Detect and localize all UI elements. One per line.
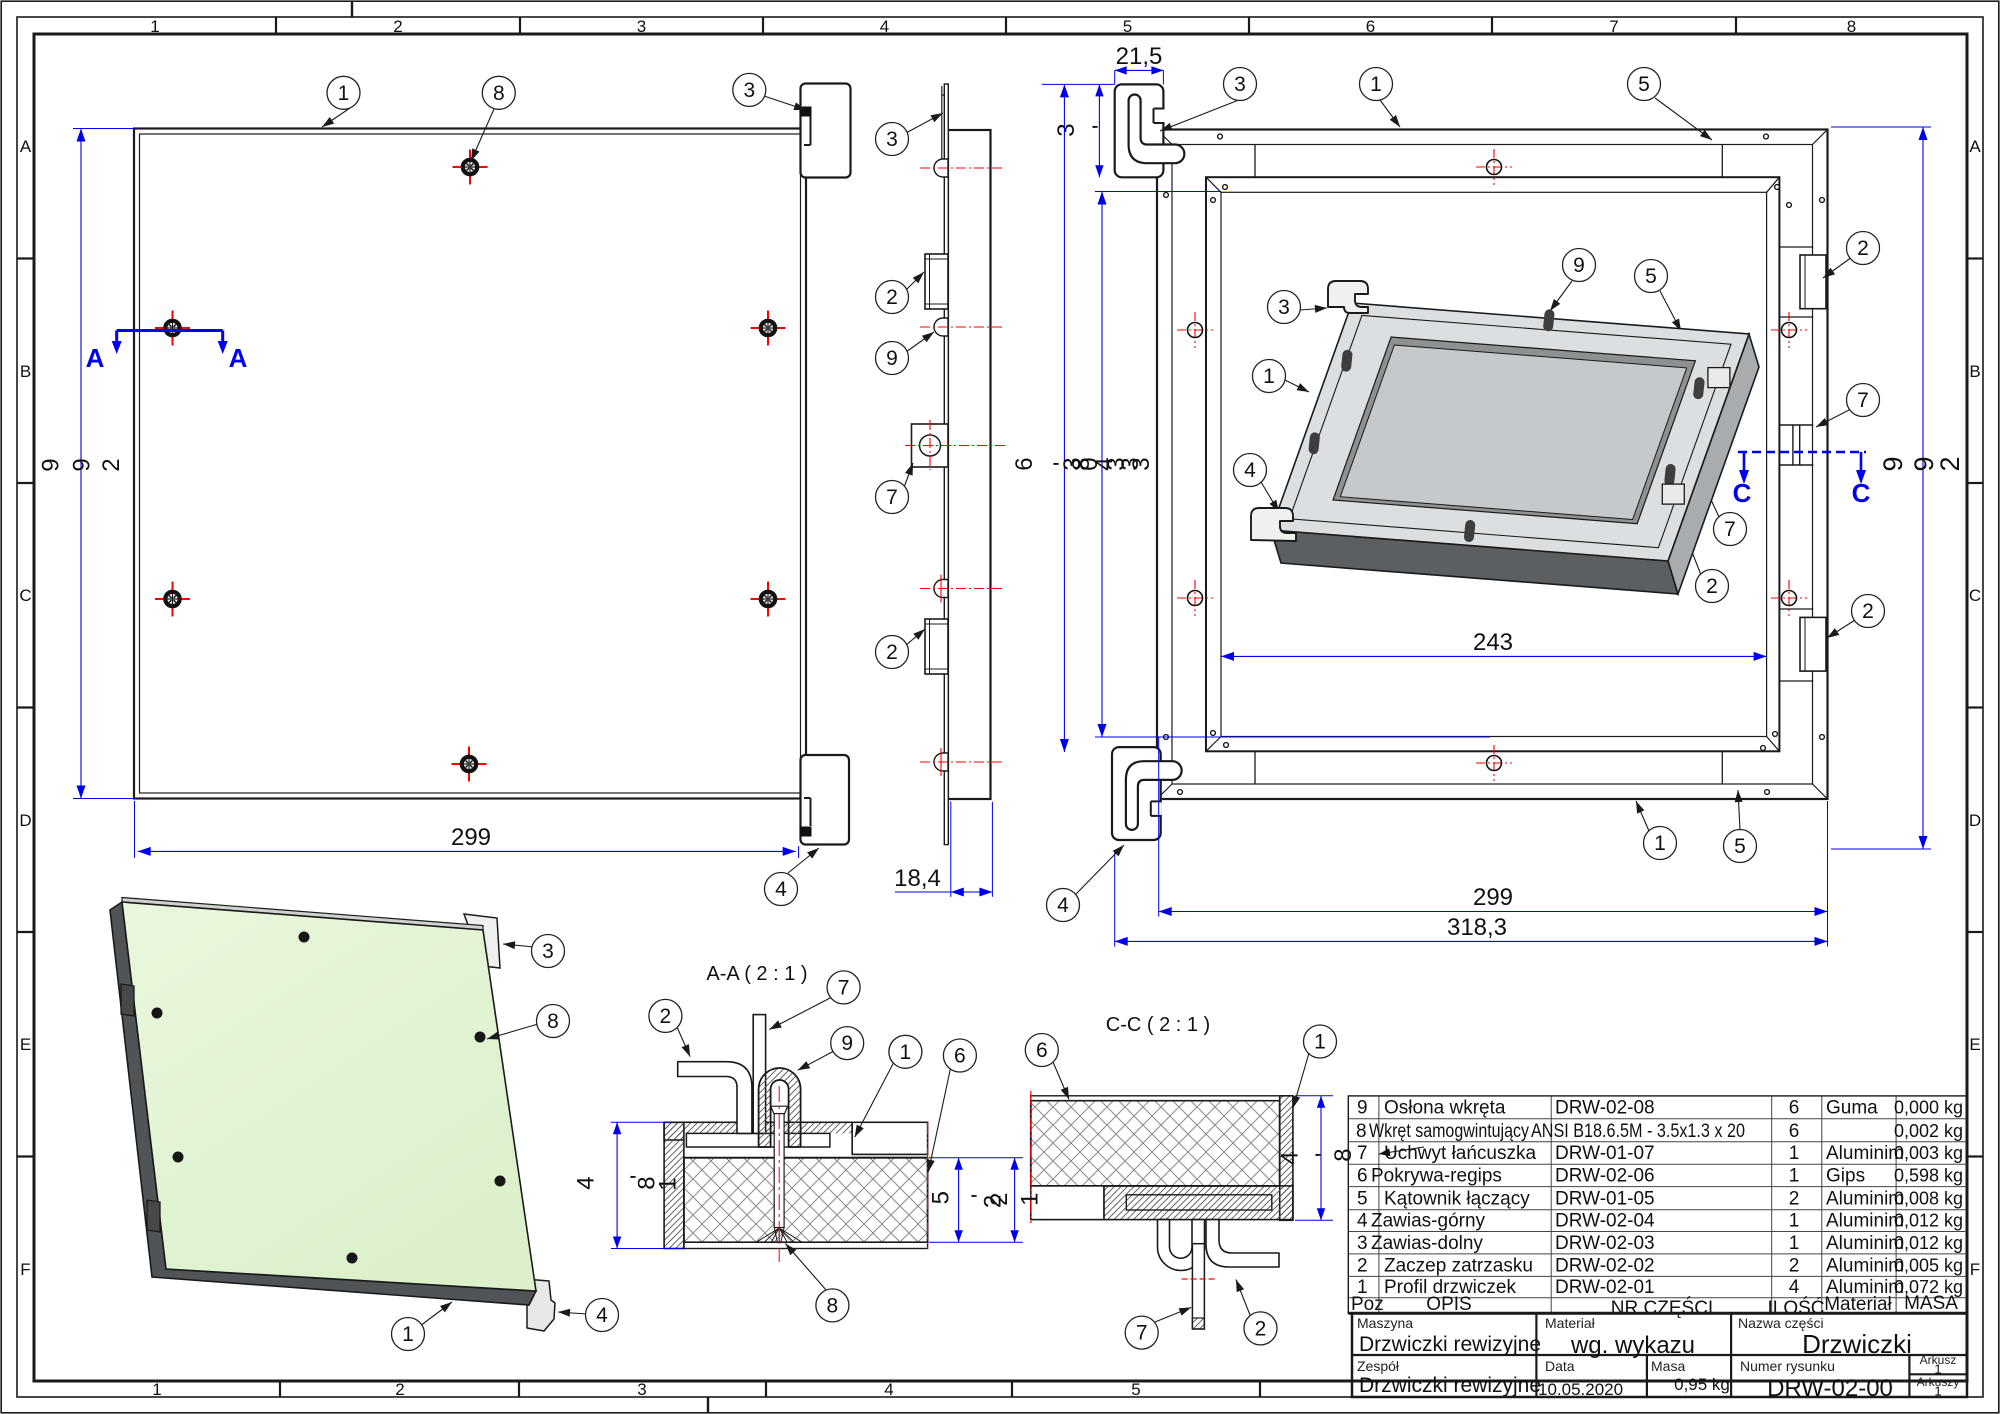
svg-text:7: 7 — [1357, 1143, 1368, 1164]
svg-text:0,003 kg: 0,003 kg — [1894, 1143, 1963, 1163]
svg-text:8: 8 — [1847, 17, 1856, 36]
svg-text:2: 2 — [1862, 600, 1874, 623]
svg-text:C: C — [1852, 478, 1871, 508]
svg-text:2: 2 — [98, 458, 125, 471]
svg-text:8: 8 — [493, 82, 505, 105]
svg-text:0,95 kg: 0,95 kg — [1674, 1375, 1730, 1394]
svg-text:Maszyna: Maszyna — [1357, 1315, 1413, 1331]
svg-text:2: 2 — [393, 17, 402, 36]
svg-text:OPIS: OPIS — [1426, 1294, 1471, 1315]
svg-text:Masa: Masa — [1651, 1358, 1685, 1374]
svg-text:1: 1 — [1263, 365, 1275, 388]
svg-text:6: 6 — [1789, 1098, 1800, 1119]
svg-text:ANSI B18.6.5M - 3.5x1.3 x 20: ANSI B18.6.5M - 3.5x1.3 x 20 — [1531, 1121, 1745, 1142]
svg-text:21,5: 21,5 — [1116, 43, 1163, 70]
svg-text:B: B — [20, 362, 31, 381]
svg-text:5: 5 — [1123, 17, 1132, 36]
svg-text:7: 7 — [838, 976, 850, 999]
svg-text:2: 2 — [1935, 456, 1965, 471]
svg-text:3: 3 — [743, 79, 755, 102]
svg-text:4: 4 — [573, 1176, 600, 1189]
svg-text:Aluminim: Aluminim — [1826, 1233, 1904, 1254]
svg-text:wg. wykazu: wg. wykazu — [1570, 1332, 1695, 1359]
svg-text:9: 9 — [68, 458, 95, 471]
svg-text:0,008 kg: 0,008 kg — [1894, 1189, 1963, 1209]
svg-text:C-C ( 2 : 1 ): C-C ( 2 : 1 ) — [1106, 1014, 1210, 1036]
svg-text:3: 3 — [637, 17, 646, 36]
svg-text:9: 9 — [886, 347, 898, 370]
svg-text:4: 4 — [1357, 1211, 1368, 1232]
svg-text:Zawias-górny: Zawias-górny — [1371, 1211, 1486, 1232]
svg-text:3: 3 — [1053, 123, 1080, 136]
svg-text:1: 1 — [1789, 1166, 1800, 1187]
svg-text:7: 7 — [1136, 1322, 1148, 1345]
svg-text:Zawias-dolny: Zawias-dolny — [1371, 1233, 1483, 1254]
svg-text:5: 5 — [928, 1191, 955, 1204]
svg-text:A: A — [1969, 137, 1981, 156]
svg-text:Aluminim: Aluminim — [1826, 1143, 1904, 1164]
svg-text:3: 3 — [637, 1380, 646, 1399]
svg-text:E: E — [1969, 1035, 1980, 1054]
svg-text:E: E — [20, 1035, 31, 1054]
svg-text:318,3: 318,3 — [1447, 914, 1507, 941]
svg-text:6: 6 — [1011, 457, 1038, 470]
svg-text:2: 2 — [1357, 1255, 1368, 1276]
svg-text:0,005 kg: 0,005 kg — [1894, 1255, 1963, 1275]
svg-text:4: 4 — [1277, 1151, 1304, 1164]
svg-text:DRW-02-00: DRW-02-00 — [1767, 1375, 1893, 1402]
svg-text:': ' — [1088, 125, 1115, 130]
svg-text:Wkręt samogwintujący: Wkręt samogwintujący — [1369, 1121, 1529, 1142]
svg-text:9: 9 — [841, 1032, 853, 1055]
svg-text:18,4: 18,4 — [894, 865, 941, 892]
svg-text:A-A ( 2 : 1 ): A-A ( 2 : 1 ) — [706, 963, 807, 985]
svg-text:8: 8 — [827, 1294, 839, 1317]
svg-text:243: 243 — [1473, 629, 1513, 656]
svg-text:2: 2 — [986, 1193, 1013, 1206]
svg-text:6: 6 — [1789, 1121, 1800, 1142]
svg-text:1: 1 — [1314, 1031, 1326, 1054]
svg-text:1: 1 — [402, 1323, 414, 1346]
svg-text:1: 1 — [338, 82, 350, 105]
svg-text:0,012 kg: 0,012 kg — [1894, 1211, 1963, 1231]
svg-text:1: 1 — [1934, 1362, 1941, 1377]
svg-text:Data: Data — [1545, 1358, 1575, 1374]
svg-text:DRW-01-05: DRW-01-05 — [1555, 1189, 1655, 1210]
svg-text:1: 1 — [1654, 832, 1666, 855]
svg-text:6: 6 — [1366, 17, 1375, 36]
svg-text:Uchwyt łańcuszka: Uchwyt łańcuszka — [1384, 1143, 1536, 1164]
svg-text:2: 2 — [1706, 575, 1718, 598]
svg-text:0,000 kg: 0,000 kg — [1894, 1098, 1963, 1118]
svg-text:F: F — [1970, 1260, 1980, 1279]
svg-text:7: 7 — [1609, 17, 1618, 36]
svg-text:1: 1 — [152, 1380, 161, 1399]
svg-text:Numer rysunku: Numer rysunku — [1740, 1358, 1835, 1374]
svg-text:8: 8 — [547, 1010, 559, 1033]
svg-text:8: 8 — [1356, 1121, 1367, 1142]
svg-text:Aluminim: Aluminim — [1826, 1189, 1904, 1210]
svg-text:1: 1 — [1789, 1143, 1800, 1164]
svg-text:1: 1 — [1934, 1384, 1941, 1399]
svg-text:D: D — [19, 811, 31, 830]
svg-text:0,002 kg: 0,002 kg — [1894, 1121, 1963, 1141]
svg-text:Osłona wkręta: Osłona wkręta — [1384, 1098, 1506, 1119]
svg-text:7: 7 — [886, 486, 898, 509]
svg-text:2: 2 — [1857, 237, 1869, 260]
svg-text:1: 1 — [654, 1177, 681, 1190]
svg-text:4: 4 — [1057, 894, 1069, 917]
svg-text:C: C — [1969, 586, 1981, 605]
svg-text:4: 4 — [1244, 459, 1256, 482]
svg-text:DRW-01-07: DRW-01-07 — [1555, 1143, 1655, 1164]
svg-text:C: C — [19, 586, 31, 605]
svg-text:Materiał: Materiał — [1545, 1315, 1596, 1331]
svg-text:DRW-02-02: DRW-02-02 — [1555, 1255, 1655, 1276]
svg-text:5: 5 — [1734, 835, 1746, 858]
svg-text:4: 4 — [884, 1380, 893, 1399]
svg-text:3: 3 — [1278, 296, 1290, 319]
svg-text:2: 2 — [1789, 1255, 1800, 1276]
svg-text:Drzwiczki: Drzwiczki — [1802, 1329, 1912, 1359]
svg-text:6: 6 — [1357, 1166, 1368, 1187]
svg-text:4: 4 — [775, 878, 787, 901]
svg-text:Zaczep zatrzasku: Zaczep zatrzasku — [1384, 1255, 1533, 1276]
svg-text:NR CZĘŚCI: NR CZĘŚCI — [1611, 1297, 1713, 1319]
svg-text:3: 3 — [542, 940, 554, 963]
svg-text:A: A — [229, 343, 248, 373]
svg-text:6: 6 — [1036, 1039, 1048, 1062]
svg-text:1: 1 — [900, 1041, 912, 1064]
svg-text:A: A — [20, 137, 32, 156]
svg-text:1: 1 — [1016, 1193, 1043, 1206]
svg-text:8: 8 — [1330, 1148, 1357, 1161]
svg-text:Zespół: Zespół — [1357, 1358, 1400, 1374]
svg-text:4: 4 — [880, 17, 889, 36]
svg-text:1: 1 — [1789, 1211, 1800, 1232]
svg-text:9: 9 — [1878, 456, 1908, 471]
svg-text:2: 2 — [886, 286, 898, 309]
svg-text:0,012 kg: 0,012 kg — [1894, 1233, 1963, 1253]
svg-text:10.05.2020: 10.05.2020 — [1538, 1380, 1623, 1399]
svg-text:5: 5 — [1357, 1189, 1368, 1210]
svg-text:Poz: Poz — [1351, 1294, 1384, 1315]
svg-text:1: 1 — [1370, 73, 1382, 96]
svg-text:2: 2 — [886, 641, 898, 664]
svg-text:3: 3 — [886, 128, 898, 151]
svg-text:9: 9 — [38, 458, 65, 471]
svg-text:3: 3 — [1357, 1233, 1368, 1254]
svg-text:D: D — [1969, 811, 1981, 830]
svg-text:9: 9 — [1357, 1098, 1368, 1119]
svg-text:2: 2 — [1255, 1317, 1267, 1340]
svg-text:DRW-02-01: DRW-02-01 — [1555, 1277, 1655, 1298]
svg-text:Drzwiczki rewizyjne: Drzwiczki rewizyjne — [1359, 1374, 1541, 1397]
svg-text:7: 7 — [1724, 518, 1736, 541]
svg-text:9: 9 — [1573, 254, 1585, 277]
svg-text:3: 3 — [1128, 457, 1155, 470]
svg-text:1: 1 — [150, 17, 159, 36]
svg-text:4: 4 — [596, 1304, 608, 1327]
svg-text:Gips: Gips — [1826, 1166, 1865, 1187]
svg-text:Drzwiczki rewizyjne: Drzwiczki rewizyjne — [1359, 1333, 1541, 1356]
svg-text:MASA: MASA — [1904, 1293, 1958, 1314]
svg-text:DRW-02-08: DRW-02-08 — [1555, 1098, 1655, 1119]
svg-text:5: 5 — [1638, 73, 1650, 96]
svg-text:A: A — [86, 343, 105, 373]
svg-text:299: 299 — [1473, 884, 1513, 911]
svg-text:Guma: Guma — [1826, 1098, 1878, 1119]
svg-text:DRW-02-03: DRW-02-03 — [1555, 1233, 1655, 1254]
svg-text:4: 4 — [1789, 1277, 1800, 1298]
svg-text:5: 5 — [1645, 265, 1657, 288]
svg-text:C: C — [1733, 478, 1752, 508]
svg-text:B: B — [1969, 362, 1980, 381]
svg-text:6: 6 — [954, 1045, 966, 1068]
svg-text:7: 7 — [1857, 389, 1869, 412]
svg-text:299: 299 — [451, 824, 491, 851]
svg-text:2: 2 — [660, 1005, 672, 1028]
svg-text:Pokrywa-regips: Pokrywa-regips — [1371, 1166, 1502, 1187]
svg-text:Materiał: Materiał — [1824, 1294, 1892, 1315]
svg-text:3: 3 — [1234, 73, 1246, 96]
svg-text:DRW-02-04: DRW-02-04 — [1555, 1211, 1655, 1232]
svg-text:1: 1 — [1789, 1233, 1800, 1254]
svg-text:0,598 kg: 0,598 kg — [1894, 1166, 1963, 1186]
svg-text:Kątownik łączący: Kątownik łączący — [1384, 1189, 1530, 1210]
svg-text:Aluminim: Aluminim — [1826, 1211, 1904, 1232]
svg-text:Aluminim: Aluminim — [1826, 1255, 1904, 1276]
svg-text:DRW-02-06: DRW-02-06 — [1555, 1166, 1655, 1187]
svg-text:F: F — [20, 1260, 30, 1279]
svg-text:5: 5 — [1131, 1380, 1140, 1399]
svg-text:2: 2 — [395, 1380, 404, 1399]
svg-text:2: 2 — [1789, 1189, 1800, 1210]
